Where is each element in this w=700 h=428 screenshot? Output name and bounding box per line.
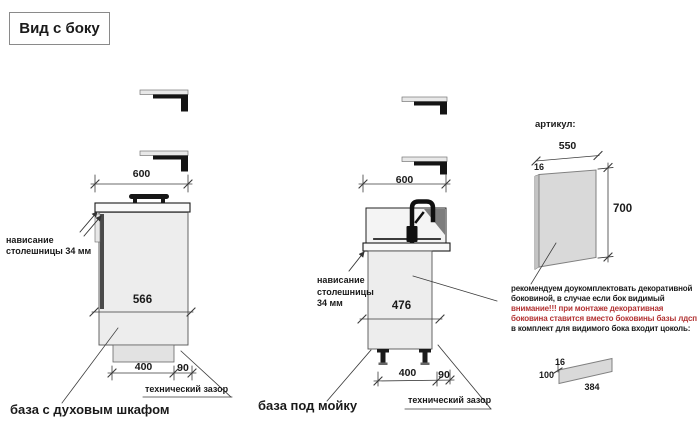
overhang-label-left-line2: столешницы 34 мм [6,247,91,256]
dim-476: 476 [379,301,424,313]
page-title: Вид с боку [9,12,110,45]
dimension-line-700 [598,163,613,262]
adjustable-foot-icon [419,349,431,365]
gap-label-left: технический зазор [145,385,228,394]
side-panel-edge [535,175,539,270]
overhang-label-middle-line2: столешницы [317,288,374,297]
dim-400-middle: 400 [385,368,430,379]
dim-700: 700 [613,204,632,216]
technical-drawing-canvas: Вид с боку нависание столешницы 34 мм 60… [0,0,700,428]
dim-90-left: 90 [168,363,198,374]
drawing-layer [0,0,700,428]
artikul-label: артикул: [535,120,576,130]
dim-550: 550 [545,141,590,152]
side-panel-drawing [531,152,613,384]
sink-base-drawing [327,97,497,409]
countertop [95,203,190,212]
countertop [363,243,450,251]
dim-600-left: 600 [119,169,164,180]
adjustable-foot-icon [377,349,389,365]
dim-100: 100 [539,371,554,380]
plinth [113,345,174,362]
dim-16-plinth: 16 [555,358,565,367]
overhang-label-middle-line1: нависание [317,276,365,285]
dim-400-left: 400 [121,362,166,373]
overhang-label-left-line1: нависание [6,236,54,245]
overhang-label-middle-line3: 34 мм [317,299,343,308]
caption-sink-base: база под мойку [258,399,357,412]
plinth-panel [559,359,612,384]
note-line-1: рекомендуем доукомплектовать декоративно… [511,285,692,293]
cabinet-body [99,213,188,346]
wall-bracket-icon [140,90,188,112]
gap-label-middle: технический зазор [408,396,491,405]
dim-566: 566 [120,295,165,307]
caption-oven-base: база с духовым шкафом [10,403,170,416]
note-line-2: боковиной, в случае если бок видимый [511,295,664,303]
note-line-5: в комплект для видимого бока входит цоко… [511,325,690,333]
dim-384: 384 [577,383,607,392]
note-line-4: боковина ставится вместо боковины базы л… [511,315,697,323]
decorative-side-panel [539,170,596,267]
caption-leader-left [62,328,118,403]
oven-door-edge [100,214,104,309]
page-title-text: Вид с боку [19,20,100,37]
wall-bracket-icon [402,97,447,115]
dim-90-middle: 90 [429,370,459,381]
dim-600-middle: 600 [382,175,427,186]
overhang-arrow-middle [349,252,364,271]
note-line-3: внимание!!! при монтаже декоративная [511,305,663,313]
dim-16-panel: 16 [534,163,544,172]
caption-leader-middle [327,350,371,401]
wall-bracket-icon [402,157,447,175]
